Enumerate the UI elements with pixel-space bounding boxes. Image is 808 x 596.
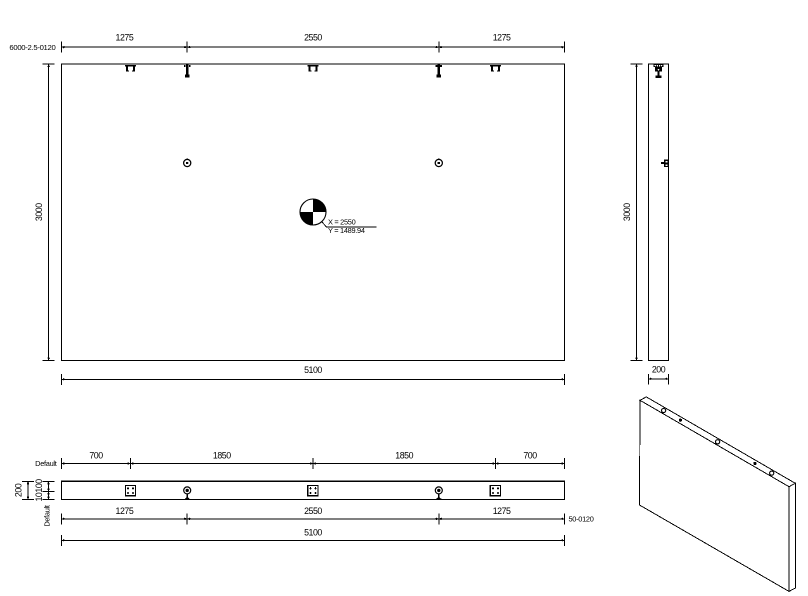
- svg-text:200: 200: [14, 483, 24, 497]
- svg-text:1850: 1850: [395, 450, 413, 460]
- svg-text:5100: 5100: [304, 365, 322, 375]
- svg-text:Default: Default: [35, 459, 57, 468]
- svg-text:10100: 10100: [34, 479, 44, 502]
- svg-text:3000: 3000: [622, 203, 632, 221]
- svg-text:2550: 2550: [304, 33, 322, 43]
- svg-text:700: 700: [89, 450, 103, 460]
- svg-text:Default: Default: [43, 505, 52, 527]
- svg-text:1850: 1850: [213, 450, 231, 460]
- svg-text:Y = 1489.94: Y = 1489.94: [328, 226, 365, 235]
- svg-text:700: 700: [523, 450, 537, 460]
- svg-text:1275: 1275: [116, 33, 134, 43]
- svg-text:200: 200: [652, 365, 666, 375]
- svg-text:1275: 1275: [493, 33, 511, 43]
- svg-text:2550: 2550: [304, 506, 322, 516]
- svg-text:6000-2.5-0120: 6000-2.5-0120: [9, 43, 55, 52]
- svg-text:50-0120: 50-0120: [569, 515, 594, 524]
- svg-text:5100: 5100: [304, 527, 322, 537]
- svg-text:3000: 3000: [34, 203, 44, 221]
- svg-text:1275: 1275: [116, 506, 134, 516]
- svg-text:1275: 1275: [493, 506, 511, 516]
